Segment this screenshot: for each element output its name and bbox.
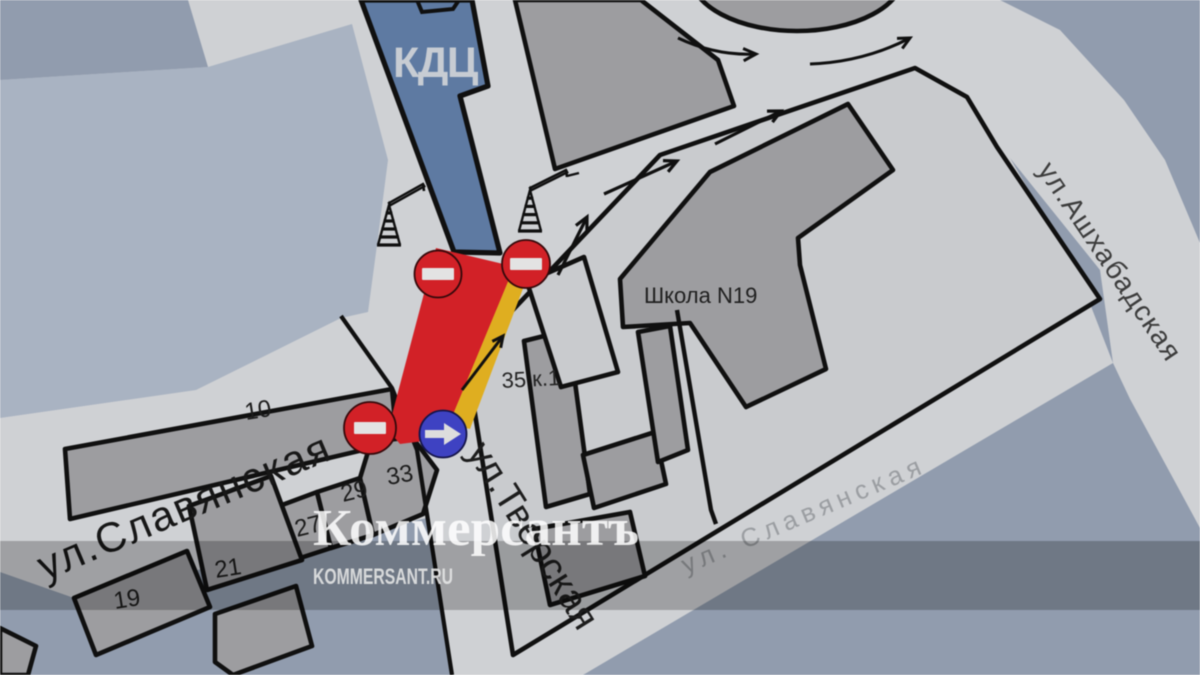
svg-text:35 к.1: 35 к.1 (501, 365, 561, 393)
svg-text:33: 33 (384, 460, 415, 491)
svg-text:Школа N19: Школа N19 (644, 283, 757, 308)
svg-text:10: 10 (243, 395, 274, 426)
svg-text:Коммерсантъ: Коммерсантъ (313, 500, 639, 557)
svg-text:KOMMERSANT.RU: KOMMERSANT.RU (313, 564, 453, 589)
svg-text:КДЦ: КДЦ (393, 39, 479, 87)
